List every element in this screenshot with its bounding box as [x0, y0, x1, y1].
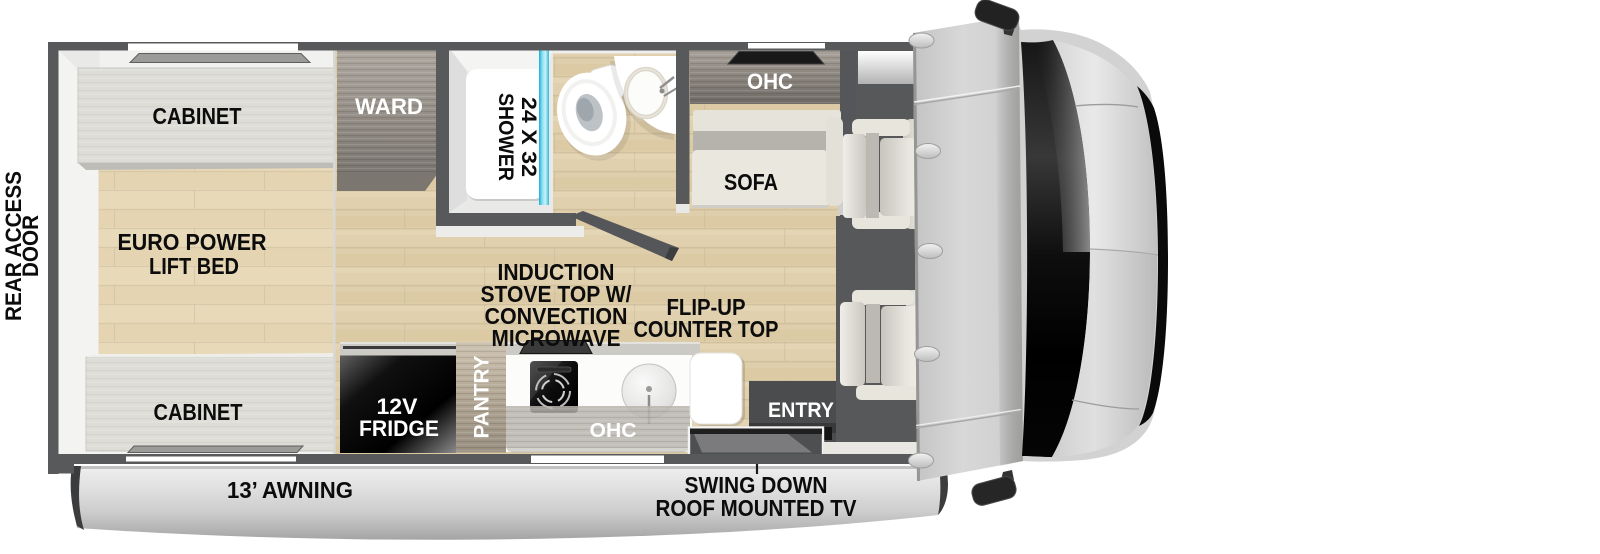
svg-text:WARD: WARD: [355, 94, 423, 119]
svg-text:FRIDGE: FRIDGE: [359, 416, 439, 441]
svg-text:OHC: OHC: [590, 419, 637, 442]
svg-text:13’ AWNING: 13’ AWNING: [227, 477, 353, 503]
svg-text:DOOR: DOOR: [18, 215, 43, 277]
svg-text:SHOWER: SHOWER: [494, 93, 517, 181]
svg-text:EURO POWER: EURO POWER: [118, 229, 267, 255]
svg-text:MICROWAVE: MICROWAVE: [492, 325, 621, 351]
svg-text:SOFA: SOFA: [724, 169, 778, 195]
svg-text:CABINET: CABINET: [154, 399, 243, 425]
svg-text:COUNTER TOP: COUNTER TOP: [634, 316, 779, 342]
svg-text:PANTRY: PANTRY: [471, 356, 494, 439]
svg-text:24 X 32: 24 X 32: [517, 97, 540, 177]
svg-text:ENTRY: ENTRY: [768, 398, 834, 422]
svg-text:CABINET: CABINET: [153, 103, 242, 129]
svg-text:ROOF MOUNTED TV: ROOF MOUNTED TV: [656, 495, 858, 521]
svg-text:LIFT BED: LIFT BED: [149, 253, 239, 279]
svg-text:OHC: OHC: [747, 69, 793, 94]
